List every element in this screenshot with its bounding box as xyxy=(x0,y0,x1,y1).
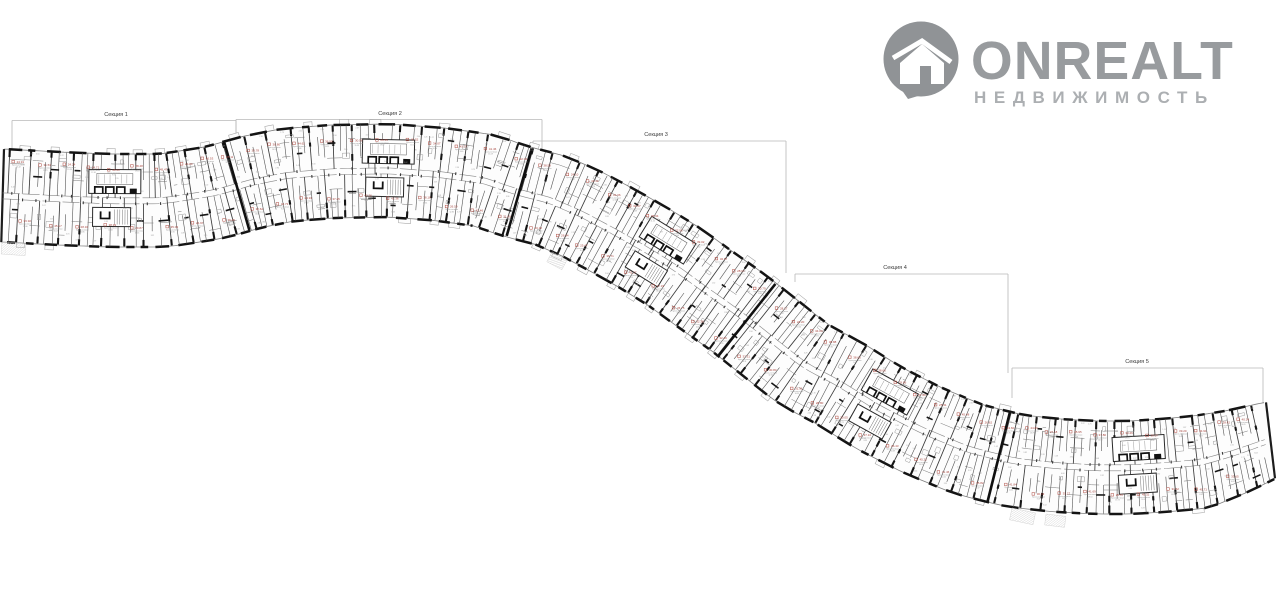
svg-text:14.46: 14.46 xyxy=(675,235,680,237)
svg-text:40.71: 40.71 xyxy=(1199,487,1207,491)
svg-text:3.51: 3.51 xyxy=(36,154,40,156)
svg-text:36.99: 36.99 xyxy=(325,139,333,143)
svg-text:24.97: 24.97 xyxy=(196,221,204,225)
svg-text:26.75: 26.75 xyxy=(677,306,685,310)
svg-text:1.08: 1.08 xyxy=(181,233,185,235)
svg-text:25.57: 25.57 xyxy=(1116,493,1124,497)
svg-text:41.46: 41.46 xyxy=(942,470,950,474)
svg-text:25.47: 25.47 xyxy=(580,243,588,247)
svg-text:38.80: 38.80 xyxy=(273,142,281,146)
svg-text:3.29: 3.29 xyxy=(804,353,808,355)
svg-text:13.87: 13.87 xyxy=(570,179,575,181)
svg-text:3.14: 3.14 xyxy=(634,193,638,195)
svg-text:16.39: 16.39 xyxy=(795,393,800,395)
svg-text:12.84: 12.84 xyxy=(606,261,611,263)
svg-text:37.25: 37.25 xyxy=(332,197,340,201)
svg-text:2.31: 2.31 xyxy=(1230,445,1234,447)
svg-text:2.33: 2.33 xyxy=(701,259,705,261)
svg-text:1.82: 1.82 xyxy=(1115,431,1119,433)
svg-text:2.61: 2.61 xyxy=(604,184,608,186)
svg-text:33.65: 33.65 xyxy=(1231,475,1239,479)
svg-text:8.50: 8.50 xyxy=(697,247,701,249)
svg-text:16.95: 16.95 xyxy=(272,149,277,151)
svg-text:3.55: 3.55 xyxy=(115,178,119,180)
svg-text:41.69: 41.69 xyxy=(1088,490,1096,494)
svg-text:9.62: 9.62 xyxy=(853,362,857,364)
svg-text:3.77: 3.77 xyxy=(817,417,821,419)
svg-text:33.26: 33.26 xyxy=(1125,431,1133,435)
svg-text:8.37: 8.37 xyxy=(976,488,980,490)
svg-text:31.52: 31.52 xyxy=(1171,487,1179,491)
svg-text:ONREALT: ONREALT xyxy=(971,32,1234,91)
svg-text:14.11: 14.11 xyxy=(742,361,746,363)
svg-text:45.95: 45.95 xyxy=(1074,430,1082,434)
svg-text:10.28: 10.28 xyxy=(1171,494,1176,496)
svg-text:2.10: 2.10 xyxy=(760,357,764,359)
svg-text:45.32: 45.32 xyxy=(1142,492,1150,496)
svg-text:12.32: 12.32 xyxy=(768,375,773,377)
svg-text:1.67: 1.67 xyxy=(820,322,824,324)
svg-text:3.40: 3.40 xyxy=(256,172,260,174)
svg-text:34.00: 34.00 xyxy=(815,329,823,333)
svg-text:17.46: 17.46 xyxy=(91,172,96,174)
svg-text:42.36: 42.36 xyxy=(391,196,399,200)
svg-text:28.48: 28.48 xyxy=(135,164,143,168)
svg-text:2.92: 2.92 xyxy=(645,238,649,240)
svg-text:1.41: 1.41 xyxy=(167,177,171,179)
svg-text:24.91: 24.91 xyxy=(305,196,313,200)
svg-text:30.80: 30.80 xyxy=(769,368,777,372)
svg-text:18.56: 18.56 xyxy=(1141,499,1146,501)
svg-text:3.56: 3.56 xyxy=(749,331,753,333)
svg-text:29.86: 29.86 xyxy=(899,381,907,385)
svg-text:2.18: 2.18 xyxy=(259,136,263,138)
svg-text:36.71: 36.71 xyxy=(606,254,614,258)
svg-text:1.20: 1.20 xyxy=(1041,454,1045,456)
svg-text:17.73: 17.73 xyxy=(43,170,48,172)
svg-text:3.29: 3.29 xyxy=(434,181,438,183)
svg-text:30.02: 30.02 xyxy=(1037,492,1045,496)
svg-text:30.58: 30.58 xyxy=(355,139,363,143)
svg-text:1.20: 1.20 xyxy=(913,448,917,450)
svg-text:3.32: 3.32 xyxy=(11,186,15,188)
svg-text:24.83: 24.83 xyxy=(185,162,193,166)
svg-text:1.76: 1.76 xyxy=(704,243,708,245)
svg-text:1.64: 1.64 xyxy=(885,434,889,436)
svg-text:3.12: 3.12 xyxy=(366,134,370,136)
svg-text:3.62: 3.62 xyxy=(802,317,806,319)
svg-text:8.68: 8.68 xyxy=(962,419,966,421)
svg-text:2.69: 2.69 xyxy=(875,395,879,397)
svg-text:10.51: 10.51 xyxy=(941,477,946,479)
svg-text:9.05: 9.05 xyxy=(520,164,524,166)
svg-text:3.48: 3.48 xyxy=(1096,458,1100,460)
svg-text:1.31: 1.31 xyxy=(580,189,584,191)
svg-text:3.97: 3.97 xyxy=(50,219,54,221)
svg-text:19.10: 19.10 xyxy=(135,171,140,173)
svg-text:3.15: 3.15 xyxy=(237,177,241,179)
svg-text:42.73: 42.73 xyxy=(281,202,289,206)
svg-text:43.60: 43.60 xyxy=(1007,426,1015,430)
svg-text:1.80: 1.80 xyxy=(869,359,873,361)
svg-text:1.19: 1.19 xyxy=(754,314,758,316)
svg-text:13.79: 13.79 xyxy=(1030,433,1035,435)
svg-text:32.94: 32.94 xyxy=(520,157,528,161)
svg-text:2.61: 2.61 xyxy=(538,233,542,235)
svg-text:44.62: 44.62 xyxy=(297,142,305,146)
svg-text:1.47: 1.47 xyxy=(742,271,746,273)
svg-text:3.97: 3.97 xyxy=(93,240,97,242)
svg-text:43.26: 43.26 xyxy=(364,193,372,197)
svg-text:19.53: 19.53 xyxy=(354,145,359,147)
svg-text:19.66: 19.66 xyxy=(23,226,28,228)
svg-text:3.77: 3.77 xyxy=(457,212,461,214)
svg-text:2.28: 2.28 xyxy=(571,232,575,234)
svg-text:2.64: 2.64 xyxy=(417,136,421,138)
svg-text:2.37: 2.37 xyxy=(375,178,379,180)
svg-text:11.39: 11.39 xyxy=(677,313,681,315)
svg-text:13.92: 13.92 xyxy=(1150,440,1155,442)
svg-text:3.02: 3.02 xyxy=(404,162,408,164)
svg-text:45.47: 45.47 xyxy=(160,168,168,172)
svg-text:3.70: 3.70 xyxy=(66,233,70,235)
svg-text:1.97: 1.97 xyxy=(530,150,534,152)
svg-text:1.63: 1.63 xyxy=(607,202,611,204)
svg-text:11.25: 11.25 xyxy=(651,220,655,222)
svg-text:36.92: 36.92 xyxy=(24,219,32,223)
svg-text:2.52: 2.52 xyxy=(123,208,127,210)
svg-text:3.29: 3.29 xyxy=(236,229,240,231)
svg-text:12.51: 12.51 xyxy=(918,399,923,401)
svg-text:25.11: 25.11 xyxy=(226,155,234,159)
svg-text:2.88: 2.88 xyxy=(952,396,956,398)
svg-text:17.69: 17.69 xyxy=(1222,427,1227,429)
svg-text:12.53: 12.53 xyxy=(984,427,989,429)
svg-text:3.24: 3.24 xyxy=(16,204,20,206)
svg-text:35.27: 35.27 xyxy=(1063,491,1071,495)
svg-text:1.02: 1.02 xyxy=(205,185,209,187)
svg-text:12.32: 12.32 xyxy=(332,204,337,206)
svg-text:3.58: 3.58 xyxy=(185,160,189,162)
svg-text:2.80: 2.80 xyxy=(262,222,266,224)
svg-text:2.67: 2.67 xyxy=(356,128,360,130)
svg-text:Секция 4: Секция 4 xyxy=(883,265,907,271)
svg-text:3.76: 3.76 xyxy=(672,275,676,277)
svg-text:1.44: 1.44 xyxy=(957,467,961,469)
svg-text:3.75: 3.75 xyxy=(471,169,475,171)
svg-text:9.16: 9.16 xyxy=(364,200,368,202)
svg-text:3.81: 3.81 xyxy=(862,386,866,388)
svg-text:3.58: 3.58 xyxy=(717,253,721,255)
svg-text:17.71: 17.71 xyxy=(815,336,820,338)
svg-text:18.24: 18.24 xyxy=(796,326,801,328)
svg-text:38.93: 38.93 xyxy=(112,168,120,172)
svg-text:1.04: 1.04 xyxy=(1032,440,1036,442)
svg-text:2.34: 2.34 xyxy=(1208,423,1212,425)
svg-text:1.41: 1.41 xyxy=(1108,502,1112,504)
svg-text:32.57: 32.57 xyxy=(720,257,728,261)
svg-text:11.82: 11.82 xyxy=(758,293,762,295)
svg-text:16.19: 16.19 xyxy=(488,153,493,155)
svg-text:1.33: 1.33 xyxy=(862,438,866,440)
svg-text:3.03: 3.03 xyxy=(1254,452,1258,454)
svg-text:2.27: 2.27 xyxy=(1133,458,1137,460)
svg-text:2.71: 2.71 xyxy=(1241,457,1245,459)
svg-text:1.05: 1.05 xyxy=(994,446,998,448)
svg-text:19.81: 19.81 xyxy=(828,347,833,349)
svg-text:37.90: 37.90 xyxy=(918,393,926,397)
svg-text:19.28: 19.28 xyxy=(67,169,72,171)
svg-text:15.07: 15.07 xyxy=(1062,498,1067,500)
svg-text:9.07: 9.07 xyxy=(1037,499,1041,501)
svg-text:30.05: 30.05 xyxy=(840,416,848,420)
svg-text:Секция 3: Секция 3 xyxy=(644,132,668,138)
svg-text:13.70: 13.70 xyxy=(591,186,596,188)
svg-text:12.19: 12.19 xyxy=(251,155,256,157)
svg-text:3.92: 3.92 xyxy=(1070,457,1074,459)
svg-text:2.41: 2.41 xyxy=(895,425,899,427)
svg-text:3.22: 3.22 xyxy=(60,155,64,157)
svg-text:16.61: 16.61 xyxy=(255,214,260,216)
svg-text:3.22: 3.22 xyxy=(968,470,972,472)
svg-text:3.36: 3.36 xyxy=(506,196,510,198)
svg-text:1.28: 1.28 xyxy=(812,415,816,417)
svg-text:38.18: 38.18 xyxy=(423,196,431,200)
svg-text:43.32: 43.32 xyxy=(591,179,599,183)
svg-text:3.33: 3.33 xyxy=(312,164,316,166)
svg-text:2.43: 2.43 xyxy=(104,221,108,223)
svg-text:13.73: 13.73 xyxy=(1115,500,1120,502)
svg-text:10.23: 10.23 xyxy=(503,221,508,223)
svg-text:1.27: 1.27 xyxy=(430,137,434,139)
svg-text:28.34: 28.34 xyxy=(81,225,89,229)
svg-text:2.32: 2.32 xyxy=(1008,467,1012,469)
svg-text:1.13: 1.13 xyxy=(450,139,454,141)
svg-text:24.10: 24.10 xyxy=(571,173,579,177)
svg-text:1.26: 1.26 xyxy=(424,137,428,139)
svg-text:18.85: 18.85 xyxy=(543,170,548,172)
svg-text:3.32: 3.32 xyxy=(151,235,155,237)
svg-text:2.22: 2.22 xyxy=(1081,423,1085,425)
svg-text:1.63: 1.63 xyxy=(391,211,395,213)
svg-text:2.61: 2.61 xyxy=(679,227,683,229)
svg-text:3.44: 3.44 xyxy=(159,178,163,180)
svg-text:8.04: 8.04 xyxy=(580,250,584,252)
svg-text:2.95: 2.95 xyxy=(648,298,652,300)
svg-text:36.29: 36.29 xyxy=(227,218,235,222)
svg-text:16.54: 16.54 xyxy=(391,203,396,205)
svg-text:3.90: 3.90 xyxy=(1172,428,1176,430)
svg-text:2.45: 2.45 xyxy=(204,235,208,237)
svg-text:13.22: 13.22 xyxy=(325,146,330,148)
svg-text:31.53: 31.53 xyxy=(43,163,51,167)
svg-text:24.91: 24.91 xyxy=(17,160,25,164)
svg-text:10.25: 10.25 xyxy=(54,231,59,233)
svg-text:24.71: 24.71 xyxy=(92,165,100,169)
svg-text:3.26: 3.26 xyxy=(626,247,630,249)
svg-text:28.42: 28.42 xyxy=(1223,420,1231,424)
svg-text:2.87: 2.87 xyxy=(1250,408,1254,410)
svg-text:3.67: 3.67 xyxy=(566,197,570,199)
svg-text:2.56: 2.56 xyxy=(455,167,459,169)
svg-text:2.98: 2.98 xyxy=(724,312,728,314)
svg-text:10.84: 10.84 xyxy=(433,148,438,150)
svg-text:4.00: 4.00 xyxy=(1061,473,1065,475)
svg-text:10.90: 10.90 xyxy=(1098,440,1103,442)
svg-text:3.42: 3.42 xyxy=(1206,468,1210,470)
svg-text:3.58: 3.58 xyxy=(1145,457,1149,459)
svg-text:19.62: 19.62 xyxy=(380,145,385,147)
svg-text:34.91: 34.91 xyxy=(1199,429,1207,433)
svg-text:2.53: 2.53 xyxy=(883,368,887,370)
svg-text:10.37: 10.37 xyxy=(1231,481,1236,483)
svg-text:2.97: 2.97 xyxy=(660,232,664,234)
svg-text:2.90: 2.90 xyxy=(275,168,279,170)
svg-text:42.46: 42.46 xyxy=(476,208,484,212)
svg-text:4.00: 4.00 xyxy=(1122,445,1126,447)
svg-text:1.58: 1.58 xyxy=(1055,456,1059,458)
svg-text:НЕДВИЖИМОСТЬ: НЕДВИЖИМОСТЬ xyxy=(974,88,1215,107)
svg-text:2.97: 2.97 xyxy=(979,473,983,475)
svg-text:1.15: 1.15 xyxy=(1162,429,1166,431)
svg-text:28.80: 28.80 xyxy=(816,401,824,405)
svg-text:12.39: 12.39 xyxy=(225,162,230,164)
svg-text:11.85: 11.85 xyxy=(80,232,84,234)
svg-text:10.69: 10.69 xyxy=(891,451,896,453)
svg-text:2.44: 2.44 xyxy=(747,291,751,293)
svg-text:2.93: 2.93 xyxy=(1247,455,1251,457)
svg-text:2.44: 2.44 xyxy=(914,471,918,473)
svg-text:Секция 1: Секция 1 xyxy=(104,112,128,118)
svg-text:3.97: 3.97 xyxy=(637,203,641,205)
svg-text:1.15: 1.15 xyxy=(834,332,838,334)
svg-text:12.90: 12.90 xyxy=(170,231,175,233)
svg-text:38.65: 38.65 xyxy=(853,355,861,359)
svg-text:3.82: 3.82 xyxy=(1023,452,1027,454)
svg-text:2.85: 2.85 xyxy=(344,149,348,151)
svg-text:16.15: 16.15 xyxy=(629,277,634,279)
svg-text:1.19: 1.19 xyxy=(30,153,34,155)
svg-text:1.86: 1.86 xyxy=(802,334,806,336)
svg-text:32.38: 32.38 xyxy=(696,320,704,324)
svg-text:3.83: 3.83 xyxy=(213,170,217,172)
svg-text:2.67: 2.67 xyxy=(42,205,46,207)
svg-text:40.52: 40.52 xyxy=(411,138,419,142)
svg-text:10.08: 10.08 xyxy=(1074,437,1079,439)
svg-text:2.71: 2.71 xyxy=(1088,424,1092,426)
svg-text:2.35: 2.35 xyxy=(1009,422,1013,424)
svg-text:43.57: 43.57 xyxy=(460,145,468,149)
svg-text:1.73: 1.73 xyxy=(280,132,284,134)
svg-text:2.33: 2.33 xyxy=(497,193,501,195)
svg-text:3.41: 3.41 xyxy=(296,165,300,167)
svg-text:31.91: 31.91 xyxy=(795,387,803,391)
svg-text:45.22: 45.22 xyxy=(919,458,927,462)
svg-text:2.21: 2.21 xyxy=(299,131,303,133)
svg-text:11.33: 11.33 xyxy=(1179,436,1183,438)
svg-text:1.70: 1.70 xyxy=(812,392,816,394)
svg-text:1.56: 1.56 xyxy=(333,135,337,137)
svg-text:1.72: 1.72 xyxy=(909,374,913,376)
svg-text:38.07: 38.07 xyxy=(1150,434,1158,438)
svg-text:9.45: 9.45 xyxy=(281,209,285,211)
svg-text:39.78: 39.78 xyxy=(252,149,260,153)
svg-text:3.90: 3.90 xyxy=(1157,473,1161,475)
svg-text:1.43: 1.43 xyxy=(684,230,688,232)
svg-text:13.49: 13.49 xyxy=(815,408,820,410)
svg-text:41.27: 41.27 xyxy=(629,270,637,274)
svg-text:24.20: 24.20 xyxy=(797,320,805,324)
svg-text:14.37: 14.37 xyxy=(919,464,924,466)
svg-text:1.82: 1.82 xyxy=(538,218,542,220)
svg-text:3.40: 3.40 xyxy=(483,217,487,219)
svg-text:2.99: 2.99 xyxy=(944,483,948,485)
svg-text:1.87: 1.87 xyxy=(1183,427,1187,429)
svg-text:2.39: 2.39 xyxy=(180,161,184,163)
svg-text:1.91: 1.91 xyxy=(637,285,641,287)
svg-text:12.34: 12.34 xyxy=(108,230,113,232)
svg-text:1.32: 1.32 xyxy=(712,283,716,285)
svg-text:1.91: 1.91 xyxy=(1017,451,1021,453)
svg-text:11.35: 11.35 xyxy=(196,228,200,230)
svg-text:41.84: 41.84 xyxy=(1009,483,1017,487)
svg-text:8.91: 8.91 xyxy=(878,375,882,377)
svg-text:2.94: 2.94 xyxy=(625,196,629,198)
svg-text:11.22: 11.22 xyxy=(1009,489,1013,491)
svg-text:15.86: 15.86 xyxy=(939,410,944,412)
svg-text:27.18: 27.18 xyxy=(1050,430,1058,434)
svg-text:12.06: 12.06 xyxy=(561,240,566,242)
svg-text:11.55: 11.55 xyxy=(898,387,902,389)
svg-text:29.87: 29.87 xyxy=(135,226,143,230)
svg-text:3.13: 3.13 xyxy=(140,191,144,193)
svg-text:3.01: 3.01 xyxy=(700,311,704,313)
svg-text:3.66: 3.66 xyxy=(1128,488,1132,490)
svg-text:2.09: 2.09 xyxy=(746,345,750,347)
svg-text:18.68: 18.68 xyxy=(737,276,742,278)
svg-text:2.09: 2.09 xyxy=(85,177,89,179)
svg-text:17.92: 17.92 xyxy=(304,203,309,205)
svg-text:15.05: 15.05 xyxy=(1049,437,1054,439)
svg-text:2.26: 2.26 xyxy=(1194,440,1198,442)
svg-text:1.29: 1.29 xyxy=(906,445,910,447)
svg-text:19.74: 19.74 xyxy=(1125,438,1130,440)
svg-text:2.32: 2.32 xyxy=(827,416,831,418)
svg-text:3.70: 3.70 xyxy=(1225,476,1229,478)
svg-text:3.81: 3.81 xyxy=(605,216,609,218)
svg-text:3.29: 3.29 xyxy=(524,235,528,237)
svg-text:8.92: 8.92 xyxy=(1199,494,1203,496)
svg-text:45.48: 45.48 xyxy=(962,412,970,416)
svg-text:14.31: 14.31 xyxy=(185,169,190,171)
svg-text:12.85: 12.85 xyxy=(449,211,454,213)
svg-text:32.96: 32.96 xyxy=(675,228,683,232)
svg-text:38.59: 38.59 xyxy=(543,163,551,167)
svg-text:31.69: 31.69 xyxy=(503,215,511,219)
svg-text:3.37: 3.37 xyxy=(1141,507,1145,509)
svg-text:3.74: 3.74 xyxy=(485,144,489,146)
svg-text:37.80: 37.80 xyxy=(1099,433,1107,437)
svg-text:2.84: 2.84 xyxy=(605,273,609,275)
svg-text:2.61: 2.61 xyxy=(970,403,974,405)
svg-text:32.62: 32.62 xyxy=(256,207,264,211)
svg-text:10.05: 10.05 xyxy=(1241,424,1246,426)
svg-text:27.33: 27.33 xyxy=(657,284,665,288)
svg-text:26.62: 26.62 xyxy=(985,420,993,424)
svg-text:12.03: 12.03 xyxy=(613,200,618,202)
svg-text:3.76: 3.76 xyxy=(548,222,552,224)
svg-text:26.43: 26.43 xyxy=(891,444,899,448)
